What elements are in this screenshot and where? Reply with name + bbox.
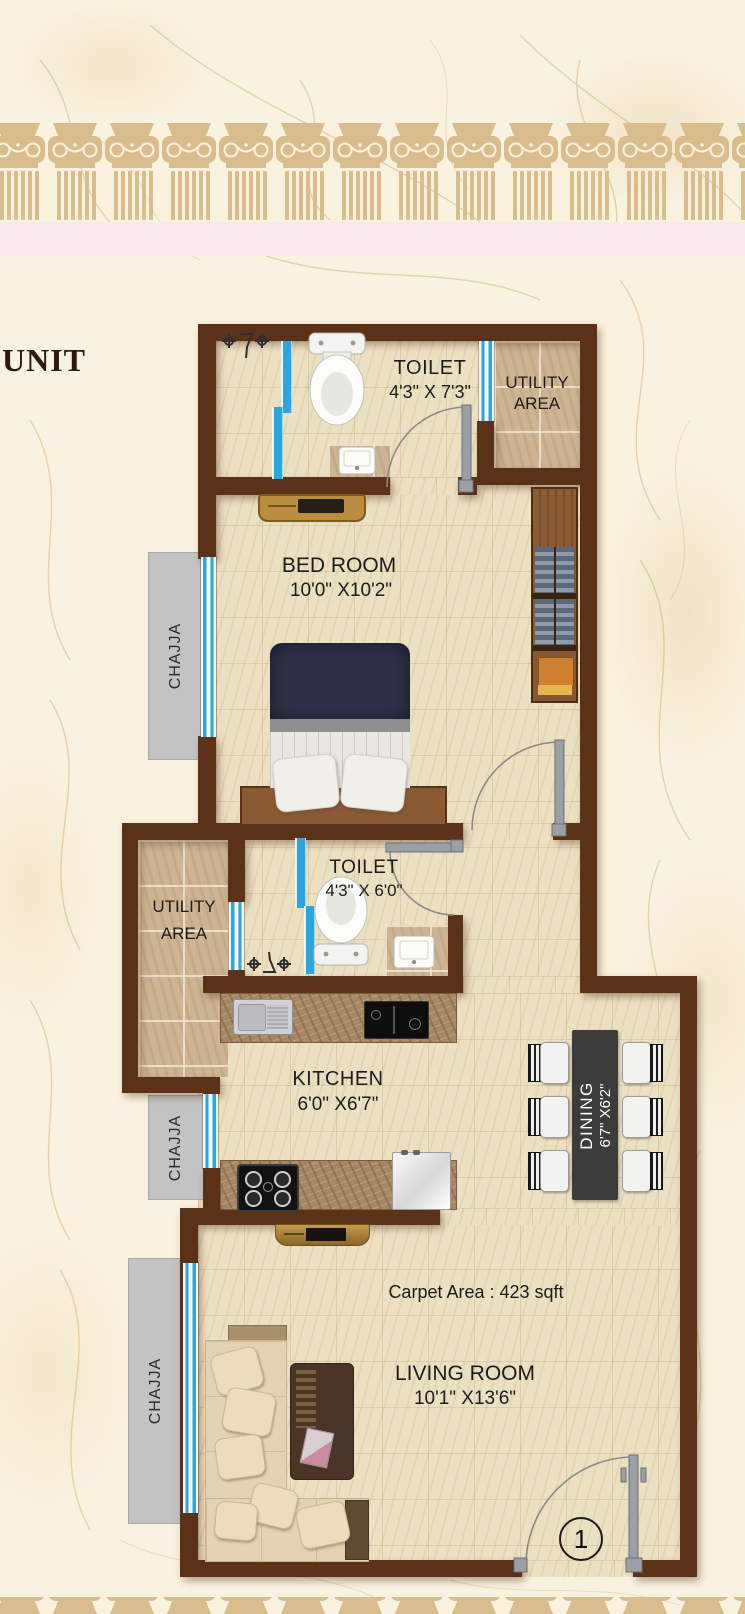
cooktop-burner: [409, 1018, 421, 1030]
bed-pillow: [339, 753, 408, 813]
stove-burner: [245, 1171, 262, 1188]
magazine: [300, 1427, 335, 1468]
floor-bedroom-doorway: [463, 823, 553, 840]
floor-toilet-doorway: [390, 477, 458, 495]
floor-kitchen-opening: [440, 1208, 680, 1225]
kitchen-sink: [233, 999, 293, 1035]
utility-top-label: UTILITY AREA: [494, 372, 580, 415]
utility-mid-label: UTILITY AREA: [138, 893, 230, 947]
dining-chair: [650, 1098, 663, 1136]
wardrobe-box: [538, 685, 572, 695]
dining-chair: [650, 1152, 663, 1190]
gas-stove: [237, 1164, 299, 1212]
dining-chair: [540, 1096, 569, 1138]
wall: [198, 324, 216, 495]
chajja-bedroom: CHAJJA: [148, 552, 204, 760]
dressing-unit: [258, 494, 366, 522]
floor-entry-doorway: [522, 1560, 633, 1577]
living-dims: 10'1" X13'6": [355, 1387, 575, 1411]
dining-chair: [622, 1150, 651, 1192]
dining-label-group: DINING 6'7" X6'2": [577, 1081, 614, 1150]
living-label: LIVING ROOM: [355, 1361, 575, 1387]
sink-basin: [238, 1004, 266, 1031]
wall: [580, 324, 597, 993]
wall: [198, 495, 216, 559]
dining-dims: 6'7" X6'2": [597, 1081, 614, 1150]
bedroom-dims: 10'0" X10'2": [249, 579, 433, 603]
chajja-living: CHAJJA: [128, 1258, 184, 1524]
stove-burner: [274, 1190, 291, 1207]
chajja-kitchen: CHAJJA: [148, 1095, 205, 1200]
basin-counter: [385, 925, 448, 976]
coffee-table: [290, 1363, 354, 1480]
wall: [122, 823, 138, 1093]
window-bedroom: [201, 557, 216, 737]
utility-top-line1: UTILITY: [494, 372, 580, 393]
utility-mid-line2: AREA: [138, 920, 230, 947]
tv-unit: [275, 1224, 370, 1246]
wall: [680, 993, 697, 1577]
cooktop: [364, 1001, 429, 1039]
sofa-pillow: [221, 1386, 278, 1438]
dining-chair: [650, 1044, 663, 1082]
bedroom-label: BED ROOM: [249, 553, 429, 579]
column-border-top: [0, 123, 745, 220]
bed-pillow: [271, 753, 340, 813]
wardrobe-divider: [554, 547, 556, 651]
toilet-mid-dims: 4'3" X 6'0": [298, 880, 430, 901]
stove-knob: [263, 1182, 273, 1192]
dining-chair: [622, 1042, 651, 1084]
window-living: [183, 1263, 198, 1513]
toilet-mid-label: TOILET: [304, 856, 424, 880]
floor-plan-page: UNIT CHAJJA CHAJJA CHAJJA: [0, 0, 745, 1614]
coffee-table-detail: [296, 1370, 316, 1428]
wall: [633, 1560, 697, 1577]
chajja-label: CHAJJA: [147, 1358, 165, 1424]
utility-mid-floor: [138, 840, 228, 1077]
stove-burner: [245, 1190, 262, 1207]
entry-door-number: 1: [559, 1517, 603, 1561]
fridge-handle: [413, 1150, 420, 1155]
bed-duvet: [270, 643, 410, 721]
tv: [306, 1228, 346, 1241]
bed-blanket-fold: [270, 719, 410, 732]
dining-chair: [540, 1042, 569, 1084]
window-utility-mid: [229, 902, 244, 970]
toilet-top-dims: 4'3" X 7'3": [362, 381, 498, 404]
chajja-label: CHAJJA: [168, 1114, 186, 1180]
unit-title: UNIT: [2, 342, 86, 379]
wall: [180, 1560, 522, 1577]
dressing-handle: [268, 505, 296, 507]
shower-partition: [281, 341, 292, 413]
sofa-pillow: [213, 1500, 258, 1542]
carpet-area-label: Carpet Area : 423 sqft: [334, 1281, 618, 1304]
pink-divider-band: [0, 222, 745, 256]
stove-burner: [274, 1171, 291, 1188]
utility-mid-line1: UTILITY: [138, 893, 230, 920]
toilet-top-label: TOILET: [370, 356, 490, 381]
entry-door-number-text: 1: [574, 1524, 588, 1555]
kitchen-dims: 6'0" X6'7": [258, 1093, 418, 1117]
wardrobe-shelf: [533, 489, 576, 547]
fridge-handle: [401, 1150, 408, 1155]
shower-partition: [304, 906, 315, 974]
shower-partition: [272, 407, 283, 479]
sink-drainboard: [267, 1005, 288, 1029]
dining-chair: [622, 1096, 651, 1138]
wall: [198, 324, 597, 341]
wardrobe: [531, 487, 578, 703]
basin-counter: [328, 444, 390, 477]
window-kitchen: [203, 1094, 218, 1168]
sofa-pillow: [213, 1433, 266, 1481]
fridge: [392, 1152, 451, 1210]
cooktop-burner: [371, 1010, 381, 1020]
utility-top-line2: AREA: [494, 393, 580, 414]
wall: [203, 976, 463, 993]
dining-label: DINING: [577, 1081, 597, 1150]
dining-chair: [540, 1150, 569, 1192]
wall: [580, 976, 697, 993]
dressing-unit-top: [298, 499, 344, 513]
column-border-bottom: [0, 1597, 745, 1614]
tv-unit-detail: [284, 1233, 304, 1235]
chajja-label: CHAJJA: [167, 623, 185, 689]
cooktop-divider: [393, 1006, 395, 1034]
kitchen-label: KITCHEN: [258, 1067, 418, 1092]
dining-table: DINING 6'7" X6'2": [572, 1030, 618, 1200]
wardrobe-box: [538, 657, 574, 687]
